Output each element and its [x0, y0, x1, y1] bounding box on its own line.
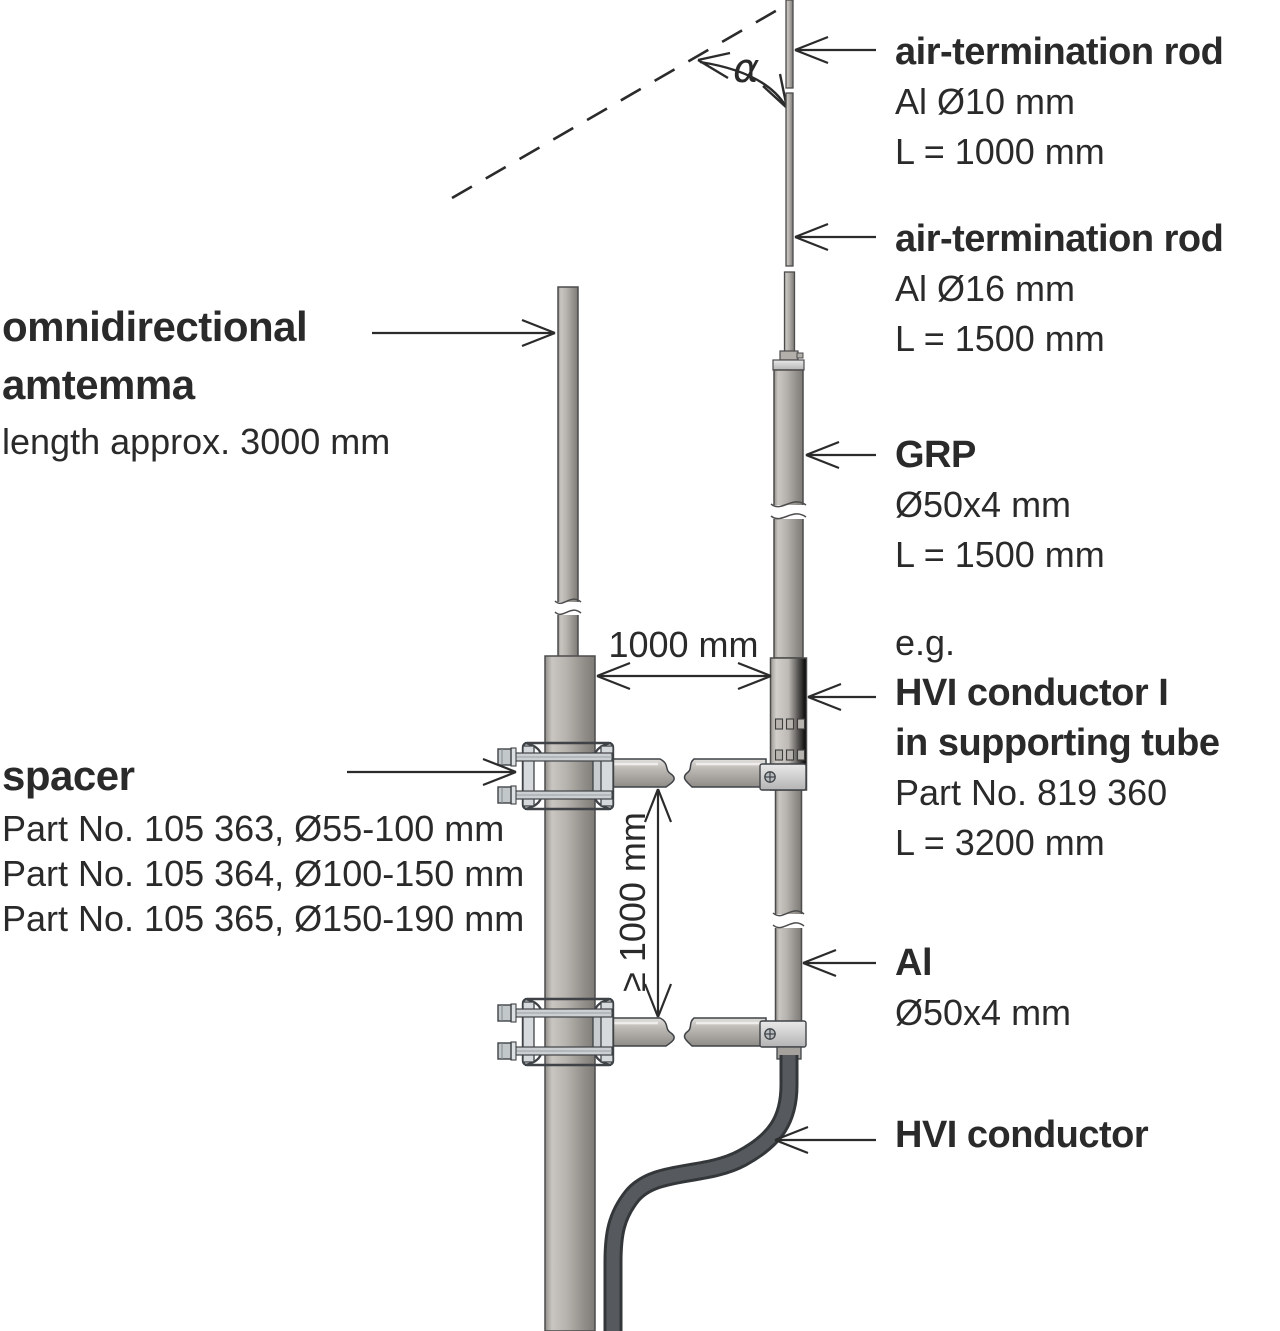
grp-title: GRP	[895, 430, 1105, 480]
al-tube-title: Al	[895, 938, 1071, 988]
antenna-title-1: omnidirectional	[2, 298, 390, 356]
arm-collar-bottom	[760, 1021, 806, 1047]
arrow-hvi-supporting	[808, 684, 876, 710]
rod-upper-title: air-termination rod	[895, 27, 1223, 77]
angle-alpha-label: α	[733, 46, 759, 92]
hvi-conductor-cable	[613, 1055, 789, 1331]
arrow-antenna	[372, 320, 555, 346]
label-hvi-conductor: HVI conductor	[895, 1110, 1148, 1160]
label-hvi-supporting-tube: e.g. HVI conductor I in supporting tube …	[895, 618, 1220, 868]
arm-collar-top	[760, 764, 806, 790]
grp-length: L = 1500 mm	[895, 530, 1105, 580]
antenna-length: length approx. 3000 mm	[2, 414, 390, 470]
label-antenna: omnidirectional amtemma length approx. 3…	[2, 298, 390, 470]
aluminium-tube	[776, 790, 802, 1030]
spacer-arm-bottom	[593, 1012, 766, 1052]
spacer-arm-top	[593, 753, 766, 793]
rod-lower-length: L = 1500 mm	[895, 314, 1223, 364]
grp-spec: Ø50x4 mm	[895, 480, 1105, 530]
label-grp: GRP Ø50x4 mm L = 1500 mm	[895, 430, 1105, 580]
hvi-supporting-part: Part No. 819 360	[895, 768, 1220, 818]
arrow-hvi-conductor	[775, 1127, 876, 1153]
air-termination-rod-thin	[786, 0, 793, 266]
label-spacer: spacer Part No. 105 363, Ø55-100 mm Part…	[2, 746, 524, 941]
hvi-supporting-prefix: e.g.	[895, 618, 1220, 668]
label-al-tube: Al Ø50x4 mm	[895, 938, 1071, 1038]
rod-upper-spec: Al Ø10 mm	[895, 77, 1223, 127]
rod-lower-title: air-termination rod	[895, 214, 1223, 264]
label-air-termination-rod-lower: air-termination rod Al Ø16 mm L = 1500 m…	[895, 214, 1223, 364]
air-termination-rod-thick	[785, 272, 795, 352]
spacer-part-1: Part No. 105 363, Ø55-100 mm	[2, 806, 524, 851]
spacer-title: spacer	[2, 746, 524, 806]
arrow-grp	[806, 442, 876, 468]
al-tube-spec: Ø50x4 mm	[895, 988, 1071, 1038]
dimension-min-1000mm-label: ≥ 1000 mm	[613, 807, 653, 997]
rod-lower-spec: Al Ø16 mm	[895, 264, 1223, 314]
label-air-termination-rod-upper: air-termination rod Al Ø10 mm L = 1000 m…	[895, 27, 1223, 177]
arrow-rod-lower	[795, 224, 876, 250]
hvi-supporting-length: L = 3200 mm	[895, 818, 1220, 868]
diagram-canvas: air-termination rod Al Ø10 mm L = 1000 m…	[0, 0, 1280, 1331]
rod-coupling	[773, 351, 804, 370]
antenna-title-2: amtemma	[2, 356, 390, 414]
spacer-part-2: Part No. 105 364, Ø100-150 mm	[2, 851, 524, 896]
angle-dashed-line	[452, 5, 786, 198]
rod-upper-length: L = 1000 mm	[895, 127, 1223, 177]
spacer-part-3: Part No. 105 365, Ø150-190 mm	[2, 896, 524, 941]
hvi-conductor-title: HVI conductor	[895, 1110, 1148, 1160]
arrow-rod-upper	[795, 37, 876, 63]
arrow-al-tube	[803, 950, 876, 976]
hvi-supporting-title-1: HVI conductor I	[895, 668, 1220, 718]
dimension-horizontal-arrow	[597, 663, 771, 689]
hvi-supporting-title-2: in supporting tube	[895, 718, 1220, 768]
dimension-1000mm-label: 1000 mm	[596, 624, 771, 666]
